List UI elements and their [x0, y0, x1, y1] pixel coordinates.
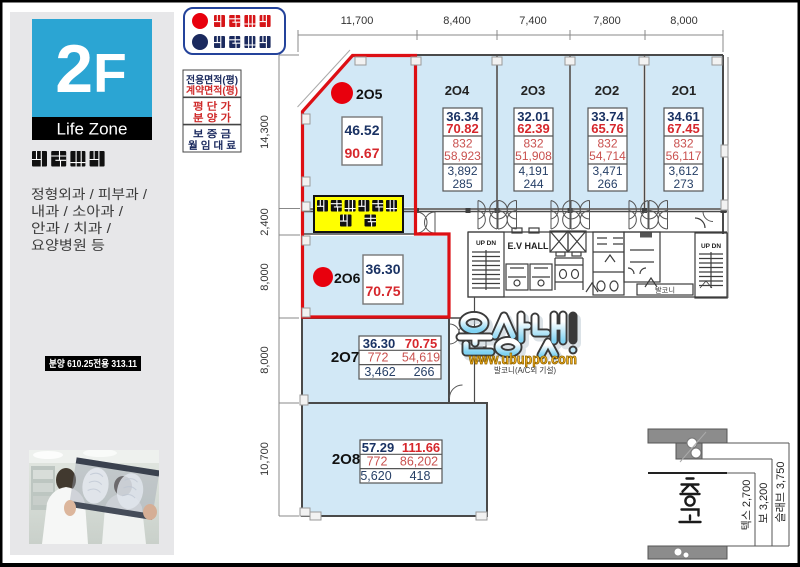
svg-text:발코니(A/C외 기설): 발코니(A/C외 기설): [494, 365, 556, 375]
svg-text:772: 772: [368, 351, 389, 365]
svg-text:평 단 가: 평 단 가: [193, 100, 232, 113]
svg-text:2O4: 2O4: [445, 83, 470, 98]
svg-text:14,300: 14,300: [259, 115, 271, 149]
svg-text:90.67: 90.67: [344, 145, 379, 161]
svg-text:UP DN: UP DN: [701, 243, 721, 250]
svg-text:Life Zone: Life Zone: [57, 120, 128, 139]
svg-text:8,000: 8,000: [259, 346, 271, 374]
svg-text:3,462: 3,462: [364, 365, 395, 379]
svg-text:분양 610.25전용 313.11: 분양 610.25전용 313.11: [49, 357, 137, 370]
svg-text:58,923: 58,923: [444, 149, 481, 163]
svg-text:772: 772: [367, 455, 388, 469]
svg-text:2O7: 2O7: [331, 349, 359, 366]
svg-text:UP DN: UP DN: [476, 240, 496, 247]
svg-text:86,202: 86,202: [400, 455, 438, 469]
svg-text:5,620: 5,620: [360, 469, 391, 483]
svg-text:2O5: 2O5: [356, 86, 383, 102]
svg-text:266: 266: [597, 177, 617, 191]
svg-text:7,400: 7,400: [519, 15, 547, 27]
svg-text:2,400: 2,400: [259, 208, 271, 236]
svg-text:111.66: 111.66: [402, 440, 440, 455]
svg-text:273: 273: [673, 177, 693, 191]
svg-text:70.82: 70.82: [446, 121, 479, 136]
svg-text:36.30: 36.30: [363, 336, 396, 351]
svg-text:4,191: 4,191: [518, 164, 548, 178]
svg-text:36.30: 36.30: [365, 261, 400, 277]
svg-text:2O2: 2O2: [595, 83, 620, 98]
svg-text:10,700: 10,700: [259, 442, 271, 476]
svg-text:8,000: 8,000: [259, 263, 271, 291]
svg-text:텍스 2,700: 텍스 2,700: [740, 480, 753, 531]
svg-text:285: 285: [452, 177, 472, 191]
svg-text:62.39: 62.39: [517, 121, 550, 136]
svg-text:244: 244: [523, 177, 543, 191]
svg-text:분 양 가: 분 양 가: [193, 112, 232, 125]
svg-text:안과 / 치과 /: 안과 / 치과 /: [31, 221, 111, 236]
svg-text:2O6: 2O6: [334, 270, 361, 286]
svg-text:11,700: 11,700: [341, 15, 374, 27]
svg-text:3,892: 3,892: [447, 164, 477, 178]
svg-text:54,714: 54,714: [589, 149, 626, 163]
svg-text:3,471: 3,471: [592, 164, 622, 178]
svg-text:발코니: 발코니: [655, 286, 675, 295]
svg-text:E.V HALL: E.V HALL: [507, 241, 549, 251]
svg-text:65.76: 65.76: [591, 121, 624, 136]
svg-text:70.75: 70.75: [365, 283, 400, 299]
svg-text:전용면적(평): 전용면적(평): [186, 74, 238, 87]
svg-text:266: 266: [414, 365, 435, 379]
svg-text:계약면적(평): 계약면적(평): [186, 84, 238, 97]
svg-text:2O3: 2O3: [521, 83, 546, 98]
svg-text:57.29: 57.29: [362, 440, 395, 455]
svg-text:월 임 대 료: 월 임 대 료: [188, 139, 236, 152]
svg-text:2O1: 2O1: [672, 83, 697, 98]
svg-text:56,117: 56,117: [666, 149, 702, 163]
svg-text:정형외과 / 피부과 /: 정형외과 / 피부과 /: [31, 187, 147, 202]
svg-text:8,000: 8,000: [670, 15, 698, 27]
svg-text:2F: 2F: [55, 31, 126, 107]
svg-text:418: 418: [410, 469, 431, 483]
svg-text:보 3,200: 보 3,200: [757, 483, 770, 524]
svg-text:54,619: 54,619: [402, 351, 440, 365]
svg-text:70.75: 70.75: [405, 336, 438, 351]
svg-text:7,800: 7,800: [593, 15, 621, 27]
svg-text:8,400: 8,400: [443, 15, 471, 27]
svg-text:3,612: 3,612: [668, 164, 698, 178]
svg-text:요양병원 등: 요양병원 등: [31, 238, 105, 253]
svg-text:보 증 금: 보 증 금: [193, 129, 231, 141]
svg-text:슬래브 3,750: 슬래브 3,750: [774, 462, 787, 523]
svg-text:51,908: 51,908: [515, 149, 552, 163]
svg-text:46.52: 46.52: [344, 122, 379, 138]
svg-text:2O8: 2O8: [332, 451, 360, 468]
svg-text:내과 / 소아과 /: 내과 / 소아과 /: [31, 204, 123, 219]
svg-text:67.45: 67.45: [667, 121, 700, 136]
